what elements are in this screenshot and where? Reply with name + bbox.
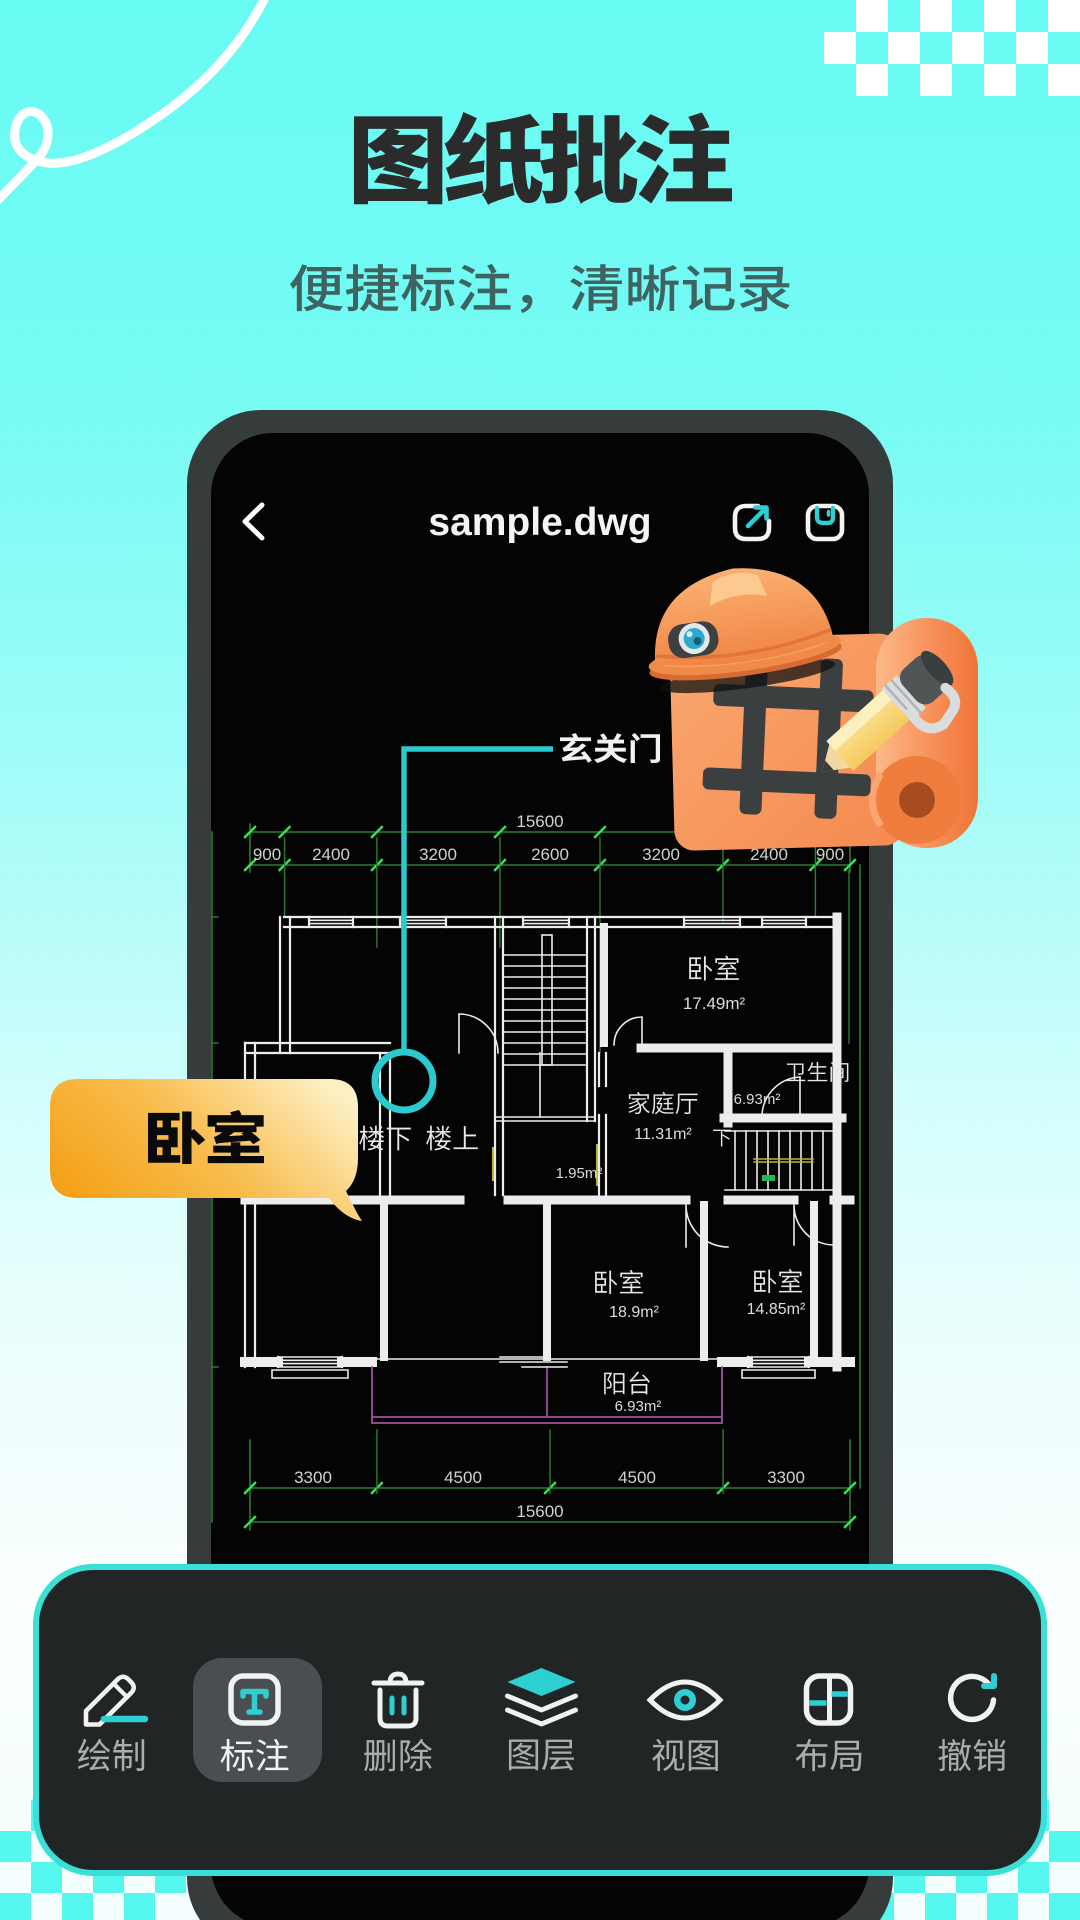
svg-text:3300: 3300 bbox=[767, 1468, 805, 1487]
svg-text:900: 900 bbox=[816, 845, 844, 864]
svg-text:15600: 15600 bbox=[516, 812, 563, 831]
svg-text:3200: 3200 bbox=[419, 845, 457, 864]
svg-text:15600: 15600 bbox=[516, 1502, 563, 1521]
svg-text:6.93m²: 6.93m² bbox=[615, 1398, 662, 1415]
svg-text:4500: 4500 bbox=[618, 1468, 656, 1487]
svg-text:3300: 3300 bbox=[294, 1468, 332, 1487]
svg-text:4500: 4500 bbox=[444, 1468, 482, 1487]
svg-text:900: 900 bbox=[253, 845, 281, 864]
svg-text:6.93m²: 6.93m² bbox=[734, 1091, 781, 1108]
svg-text:3200: 3200 bbox=[642, 845, 680, 864]
svg-text:2400: 2400 bbox=[312, 845, 350, 864]
svg-text:1.95m²: 1.95m² bbox=[556, 1165, 603, 1182]
svg-text:18.9m²: 18.9m² bbox=[609, 1304, 659, 1321]
svg-text:2600: 2600 bbox=[531, 845, 569, 864]
svg-text:sample.dwg: sample.dwg bbox=[428, 501, 651, 544]
svg-text:11.31m²: 11.31m² bbox=[634, 1126, 692, 1143]
svg-text:17.49m²: 17.49m² bbox=[683, 994, 746, 1013]
svg-text:14.85m²: 14.85m² bbox=[747, 1301, 806, 1318]
